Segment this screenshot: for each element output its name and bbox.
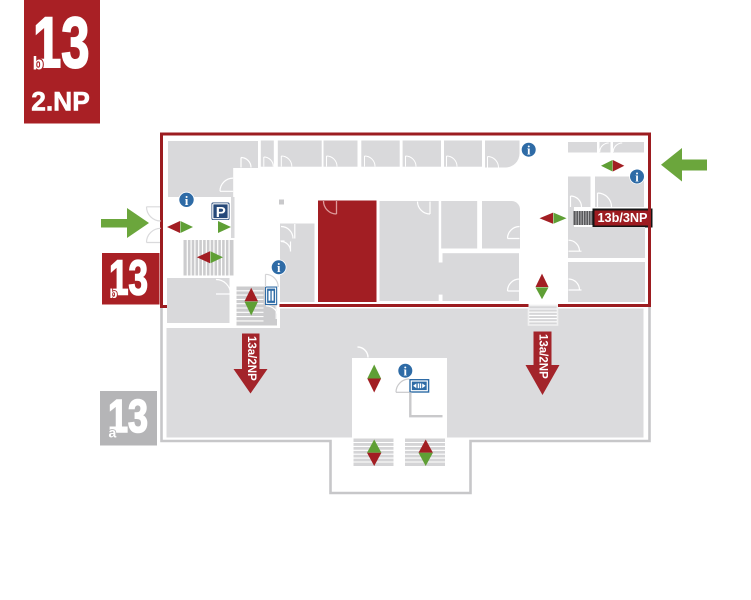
- svg-text:a: a: [109, 425, 117, 441]
- svg-text:i: i: [185, 193, 189, 208]
- svg-text:b: b: [33, 54, 44, 74]
- svg-text:P: P: [216, 204, 226, 221]
- svg-text:i: i: [635, 170, 639, 184]
- svg-text:i: i: [404, 365, 408, 379]
- svg-text:2.NP: 2.NP: [31, 87, 90, 117]
- svg-text:i: i: [527, 144, 531, 158]
- svg-text:13a/2NP: 13a/2NP: [245, 336, 257, 381]
- svg-text:13a/2NP: 13a/2NP: [537, 334, 549, 379]
- svg-text:b: b: [110, 286, 118, 301]
- svg-text:13b/3NP: 13b/3NP: [598, 210, 648, 225]
- svg-text:i: i: [277, 261, 281, 275]
